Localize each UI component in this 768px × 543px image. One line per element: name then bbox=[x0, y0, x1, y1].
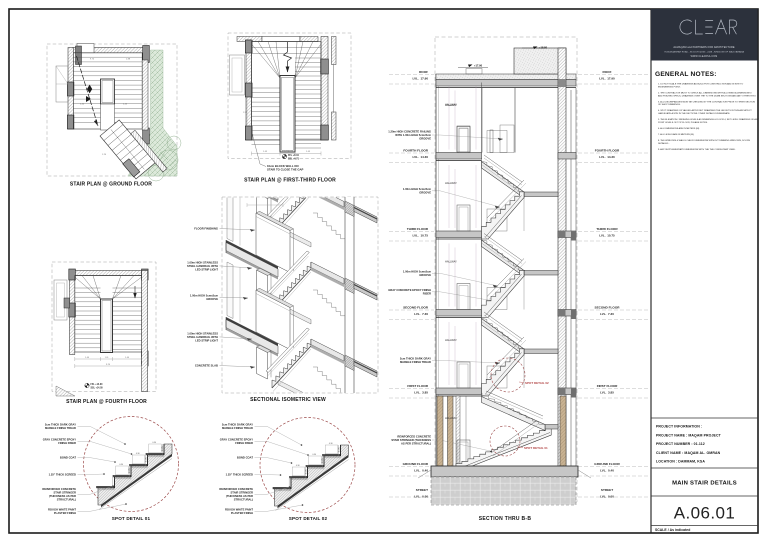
svg-text:2cm THICK DARK GRAY: 2cm THICK DARK GRAY bbox=[400, 357, 431, 361]
svg-text:SECTION THRU B-B: SECTION THRU B-B bbox=[479, 516, 532, 522]
svg-text:1.25" THICK SCREED: 1.25" THICK SCREED bbox=[49, 473, 76, 477]
svg-text:PLASTER FINISH: PLASTER FINISH bbox=[231, 511, 253, 515]
svg-text:LVL. 17.90: LVL. 17.90 bbox=[413, 76, 429, 80]
svg-text:LVL. 0.40: LVL. 0.40 bbox=[600, 468, 614, 472]
svg-text:2cm THICK DARK GRAY: 2cm THICK DARK GRAY bbox=[45, 423, 76, 427]
svg-text:1.00m HIGH STAINLESS: 1.00m HIGH STAINLESS bbox=[187, 332, 218, 336]
svg-text:LANDSCAPE A SITE IN THE SECTIO: LANDSCAPE A SITE IN THE SECTIONS OTHER D… bbox=[658, 112, 731, 115]
svg-text:0.175: 0.175 bbox=[322, 458, 324, 463]
svg-text:FOURTH FLOOR: FOURTH FLOOR bbox=[595, 149, 620, 153]
svg-text:FOURTH FLOOR: FOURTH FLOOR bbox=[403, 149, 428, 153]
svg-text:7533 ANJASHAH ROAD - 9131 DH 3: 7533 ANJASHAH ROAD - 9131 DH 32256 - 244… bbox=[664, 51, 744, 54]
svg-text:ROOF: ROOF bbox=[419, 70, 428, 74]
svg-text:0.175: 0.175 bbox=[129, 468, 131, 473]
svg-text:FLOOR FINISHING: FLOOR FINISHING bbox=[194, 227, 218, 231]
svg-text:PLASTER FINISH: PLASTER FINISH bbox=[54, 511, 76, 515]
svg-text:HALLWAY: HALLWAY bbox=[445, 416, 457, 420]
svg-text:GROOVE: GROOVE bbox=[419, 273, 431, 277]
svg-text:FIRST FLOOR: FIRST FLOOR bbox=[597, 384, 618, 388]
svg-text:REINFORCED CONCRETE: REINFORCED CONCRETE bbox=[42, 487, 76, 491]
svg-text:0.10 1.06 0.10: 0.10 1.06 0.10 bbox=[282, 151, 293, 153]
svg-text:FINISH RISER: FINISH RISER bbox=[58, 441, 76, 445]
svg-text:MARBLE FINISH TREAD: MARBLE FINISH TREAD bbox=[45, 426, 76, 430]
svg-text:LVL. 3.85: LVL. 3.85 bbox=[414, 390, 428, 394]
svg-text:0.175: 0.175 bbox=[146, 457, 148, 462]
svg-text:SPOT DETAIL 01: SPOT DETAIL 01 bbox=[524, 446, 548, 450]
svg-text:0.175: 0.175 bbox=[339, 447, 341, 452]
svg-text:0.30: 0.30 bbox=[152, 442, 156, 444]
svg-text:+17.90: +17.90 bbox=[474, 64, 483, 68]
svg-text:SECOND FLOOR: SECOND FLOOR bbox=[595, 306, 621, 310]
svg-text:2cm THICK DARK GRAY: 2cm THICK DARK GRAY bbox=[222, 423, 253, 427]
svg-text:CLIENT NAME : MAQAM AL. OMRAN: CLIENT NAME : MAQAM AL. OMRAN bbox=[656, 451, 721, 455]
svg-text:0.175: 0.175 bbox=[162, 446, 164, 451]
svg-text:BOND COAT: BOND COAT bbox=[60, 456, 76, 460]
svg-text:HALLWAY: HALLWAY bbox=[445, 181, 457, 185]
svg-text:WWW.CLEARSA.COM: WWW.CLEARSA.COM bbox=[691, 55, 718, 58]
svg-text:MARBLE FINISH TREAD: MARBLE FINISH TREAD bbox=[222, 426, 253, 430]
svg-text:LVL. 14.30: LVL. 14.30 bbox=[599, 155, 615, 159]
svg-text:ENGINEERING POINT.: ENGINEERING POINT. bbox=[658, 86, 681, 88]
svg-text:STRUCTURAL): STRUCTURAL) bbox=[234, 498, 253, 502]
svg-text:STAIR TO CLOSE THE GAP: STAIR TO CLOSE THE GAP bbox=[267, 168, 304, 172]
svg-text:8. THE WINDOWS & WALLS CHECK D: 8. THE WINDOWS & WALLS CHECK DIMENSIONS … bbox=[658, 139, 751, 142]
svg-text:REINFORCED CONCRETE: REINFORCED CONCRETE bbox=[397, 435, 431, 439]
svg-text:GROOVE: GROOVE bbox=[206, 297, 218, 301]
svg-text:CONCRETE SLAB: CONCRETE SLAB bbox=[195, 364, 218, 368]
svg-text:HALLWAY: HALLWAY bbox=[445, 260, 457, 264]
svg-text:HALLWAY: HALLWAY bbox=[445, 103, 457, 107]
svg-text:STEEL HANDRAIL WITH: STEEL HANDRAIL WITH bbox=[187, 264, 218, 268]
svg-text:9. ANY SUPPLEMENTARY DIMENSION: 9. ANY SUPPLEMENTARY DIMENSIONS WITH THE… bbox=[658, 148, 736, 151]
svg-text:(THICKNESS AS PER: (THICKNESS AS PER bbox=[49, 494, 76, 498]
svg-text:5. THE ELEVATION / FINISHING L: 5. THE ELEVATION / FINISHING LEVELS AS D… bbox=[658, 118, 759, 121]
svg-text:LVL. 7.30: LVL. 7.30 bbox=[600, 312, 614, 316]
svg-text:ROOF: ROOF bbox=[603, 70, 612, 74]
svg-text:STAIR PLAN @ GROUND FLOOR: STAIR PLAN @ GROUND FLOOR bbox=[70, 182, 152, 188]
svg-text:LVL. 10.75: LVL. 10.75 bbox=[413, 233, 429, 237]
svg-text:SECTIONAL ISOMETRIC VIEW: SECTIONAL ISOMETRIC VIEW bbox=[250, 397, 326, 403]
svg-text:STAIR PLAN @ FIRST-THIRD FLOOR: STAIR PLAN @ FIRST-THIRD FLOOR bbox=[244, 178, 336, 184]
svg-text:SCALE / As indicated: SCALE / As indicated bbox=[655, 528, 690, 532]
svg-text:STREET: STREET bbox=[601, 488, 613, 492]
svg-text:1. DO NOT SCALE THE DRAWINGS A: 1. DO NOT SCALE THE DRAWINGS AS BUILD FO… bbox=[658, 83, 743, 86]
svg-text:GROUND FLOOR: GROUND FLOOR bbox=[594, 462, 620, 466]
svg-text:FFL +14.30: FFL +14.30 bbox=[91, 383, 104, 386]
svg-text:STAIR PLAN @ FOURTH FLOOR: STAIR PLAN @ FOURTH FLOOR bbox=[66, 399, 147, 405]
svg-text:REINFORCED CONCRETE: REINFORCED CONCRETE bbox=[219, 487, 253, 491]
svg-text:LVL. 10.75: LVL. 10.75 bbox=[599, 233, 615, 237]
svg-text:FINISH RISER: FINISH RISER bbox=[235, 441, 253, 445]
svg-text:LED STRIP LIGHT: LED STRIP LIGHT bbox=[195, 338, 218, 342]
svg-text:ROUGH WHITE PAINT: ROUGH WHITE PAINT bbox=[48, 508, 76, 512]
svg-text:LVL. 0.00: LVL. 0.00 bbox=[414, 495, 428, 499]
svg-text:1.00m HIGH 5cmx5cm: 1.00m HIGH 5cmx5cm bbox=[190, 294, 219, 298]
svg-text:3. ALL DISCREPANCIES MUST BE C: 3. ALL DISCREPANCIES MUST BE CHECKED BY … bbox=[658, 100, 755, 103]
svg-text:HALLWAY: HALLWAY bbox=[445, 338, 457, 342]
svg-text:AND FIGURED SPECS, DRAWINGS OV: AND FIGURED SPECS, DRAWINGS OVER THE TO … bbox=[658, 94, 756, 97]
svg-text:SPOT DETAIL 01: SPOT DETAIL 01 bbox=[112, 516, 151, 521]
svg-text:STRUCTURAL): STRUCTURAL) bbox=[57, 498, 76, 502]
svg-text:LVL. 17.90: LVL. 17.90 bbox=[599, 76, 615, 80]
svg-text:0.30: 0.30 bbox=[119, 464, 123, 466]
svg-text:(THICKNESS AS PER: (THICKNESS AS PER bbox=[226, 494, 253, 498]
svg-text:2. THE CONTRACTOR MUST TO CHEC: 2. THE CONTRACTOR MUST TO CHECK ALL DIME… bbox=[658, 91, 752, 94]
svg-text:THIRD FLOOR: THIRD FLOOR bbox=[596, 227, 618, 231]
svg-text:SECOND FLOOR: SECOND FLOOR bbox=[403, 306, 429, 310]
svg-text:LVL. 0.00: LVL. 0.00 bbox=[600, 495, 614, 499]
svg-text:GRAY CONCRETE EPOXY FINISH: GRAY CONCRETE EPOXY FINISH bbox=[388, 288, 431, 292]
svg-text:STAIR STRINGER: STAIR STRINGER bbox=[231, 491, 254, 495]
svg-text:ALMAQAM and PARTNERS FOR ARCHI: ALMAQAM and PARTNERS FOR ARCHITECTURE bbox=[673, 46, 734, 49]
svg-text:GENERAL NOTES:: GENERAL NOTES: bbox=[655, 71, 717, 78]
svg-text:FFL +0.44: FFL +0.44 bbox=[288, 154, 299, 157]
svg-text:1.55: 1.55 bbox=[243, 112, 247, 114]
svg-text:1.00m HIGH STAINLESS: 1.00m HIGH STAINLESS bbox=[187, 261, 218, 265]
svg-text:1.00m HIGH 5cmx5cm: 1.00m HIGH 5cmx5cm bbox=[403, 270, 432, 274]
svg-text:WITH 1.00m HIGH 5cmx5cm: WITH 1.00m HIGH 5cmx5cm bbox=[395, 133, 431, 137]
svg-text:POINT LEVELS OF TOP FLOOR, PLE: POINT LEVELS OF TOP FLOOR, PLEASE NOTES. bbox=[658, 121, 708, 124]
svg-text:0.30: 0.30 bbox=[136, 453, 140, 455]
svg-text:LVL. 0.40: LVL. 0.40 bbox=[414, 468, 428, 472]
svg-text:LVL. 3.85: LVL. 3.85 bbox=[600, 390, 614, 394]
svg-text:1.25" THICK SCREED: 1.25" THICK SCREED bbox=[226, 473, 253, 477]
svg-text:GRAY CONCRETE EPOXY: GRAY CONCRETE EPOXY bbox=[43, 438, 77, 442]
svg-text:FIRST FLOOR: FIRST FLOOR bbox=[407, 384, 428, 388]
svg-text:0.30: 0.30 bbox=[329, 443, 333, 445]
svg-text:PROJECT NUMBER : 01.112: PROJECT NUMBER : 01.112 bbox=[656, 442, 705, 446]
svg-text:7. ALL LEVELS ARE IN METERS (M: 7. ALL LEVELS ARE IN METERS (M). bbox=[658, 133, 695, 136]
svg-text:SPOT DETAIL 02: SPOT DETAIL 02 bbox=[525, 381, 549, 385]
svg-text:LED STRIP LIGHT: LED STRIP LIGHT bbox=[195, 267, 218, 271]
svg-text:GROOVE: GROOVE bbox=[419, 136, 431, 140]
svg-text:LVL. 14.30: LVL. 14.30 bbox=[413, 155, 429, 159]
svg-text:0.30: 0.30 bbox=[296, 465, 300, 467]
svg-text:GROUND FLOOR: GROUND FLOOR bbox=[403, 462, 429, 466]
svg-text:PROJECT NAME : MAQAM PROJECT: PROJECT NAME : MAQAM PROJECT bbox=[656, 434, 722, 438]
svg-text:RISER: RISER bbox=[423, 291, 431, 295]
svg-text:LVL. 7.30: LVL. 7.30 bbox=[414, 312, 428, 316]
svg-text:ROUGH WHITE PAINT: ROUGH WHITE PAINT bbox=[225, 508, 253, 512]
svg-text:SPOT DETAIL 02: SPOT DETAIL 02 bbox=[289, 516, 328, 521]
svg-text:0.175: 0.175 bbox=[306, 469, 308, 474]
svg-text:A.06.01: A.06.01 bbox=[674, 504, 735, 523]
svg-text:+18.80: +18.80 bbox=[539, 46, 548, 50]
svg-text:STEEL HANDRAIL WITH: STEEL HANDRAIL WITH bbox=[187, 335, 218, 339]
svg-text:6. ALL DIMENSIONS ARE IN METER: 6. ALL DIMENSIONS ARE IN METERS (M). bbox=[658, 127, 700, 130]
svg-text:MAIN STAIR DETAILS: MAIN STAIR DETAILS bbox=[672, 481, 737, 487]
svg-text:STAIR STRINGER (THICKNESS: STAIR STRINGER (THICKNESS bbox=[391, 438, 431, 442]
svg-text:1.05: 1.05 bbox=[105, 357, 109, 359]
svg-text:1.00m HIGH 5cmx5cm: 1.00m HIGH 5cmx5cm bbox=[403, 187, 432, 191]
svg-text:AS PER STRUCTURAL): AS PER STRUCTURAL) bbox=[401, 441, 431, 445]
svg-text:STAIR STRINGER: STAIR STRINGER bbox=[54, 491, 77, 495]
svg-text:THIRD FLOOR: THIRD FLOOR bbox=[407, 227, 429, 231]
svg-text:OF SHOP DRAWINGS.: OF SHOP DRAWINGS. bbox=[658, 103, 681, 106]
svg-text:STREET: STREET bbox=[416, 488, 428, 492]
svg-text:SSL +0.71: SSL +0.71 bbox=[288, 158, 300, 160]
svg-text:1.20m HIGH CONCRETE RAILING: 1.20m HIGH CONCRETE RAILING bbox=[388, 130, 431, 134]
svg-text:MARBLE FINISH TREAD: MARBLE FINISH TREAD bbox=[400, 360, 431, 364]
svg-text:BOND COAT: BOND COAT bbox=[237, 456, 253, 460]
svg-text:PROJECT INFORMATION :: PROJECT INFORMATION : bbox=[656, 425, 702, 429]
svg-text:LOCATION : DAMMAM, KSA: LOCATION : DAMMAM, KSA bbox=[656, 460, 705, 464]
svg-text:DETAILED .: DETAILED . bbox=[658, 142, 670, 145]
svg-text:4. SPOT DRAWINGS OF VALUED AFT: 4. SPOT DRAWINGS OF VALUED AFTER SET DRA… bbox=[658, 109, 752, 112]
svg-text:GRAY CONCRETE EPOXY: GRAY CONCRETE EPOXY bbox=[220, 438, 254, 442]
svg-text:0.30: 0.30 bbox=[312, 454, 316, 456]
svg-text:SSL +14.05: SSL +14.05 bbox=[91, 386, 104, 389]
svg-text:GROOVE: GROOVE bbox=[419, 190, 431, 194]
